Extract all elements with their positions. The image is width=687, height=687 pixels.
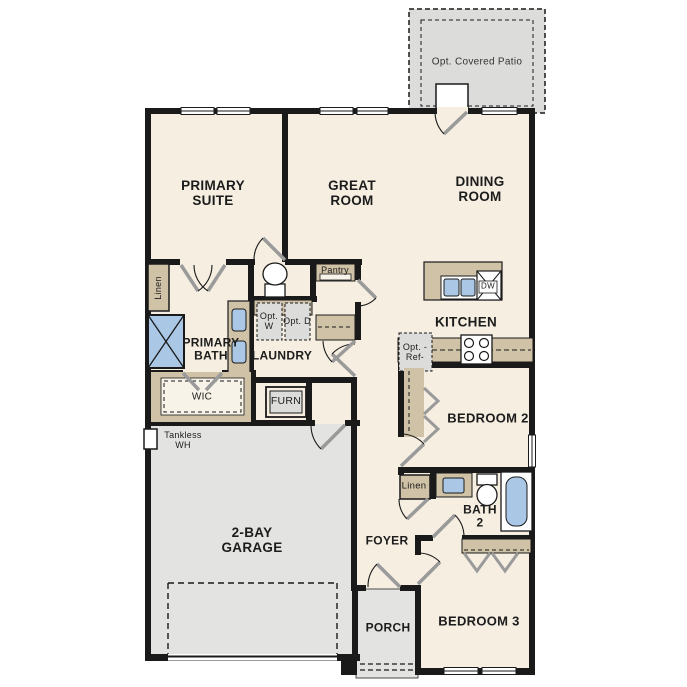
room-label-bath-2: BATH 2 (460, 504, 500, 531)
range-icon (461, 335, 492, 364)
floor-plan: Opt. Covered Patio PRIMARY SUITE GREAT R… (0, 0, 687, 687)
porch-post (341, 658, 357, 675)
label-opt-ref: Opt. -Ref- (399, 342, 431, 362)
bedroom2-closet (404, 368, 424, 437)
bathtub-icon (501, 472, 532, 531)
label-dishwasher: DW (481, 283, 495, 292)
garage-door-opening (168, 654, 337, 662)
room-label-patio: Opt. Covered Patio (432, 56, 522, 67)
room-label-great-room: GREAT ROOM (317, 178, 387, 208)
bedroom3-closet-shelf (462, 539, 531, 553)
label-opt-dryer: Opt. D (283, 316, 311, 326)
room-label-kitchen: KITCHEN (435, 314, 497, 329)
room-label-garage: 2-BAY GARAGE (212, 525, 292, 555)
floor-plan-drawing (0, 0, 687, 687)
dining-room-window (482, 108, 517, 115)
room-label-laundry: LAUNDRY (252, 349, 312, 362)
room-label-foyer: FOYER (366, 534, 409, 547)
room-label-dining-room: DINING ROOM (445, 174, 515, 204)
label-furnace: FURN (271, 396, 301, 408)
label-linen-bath2: Linen (402, 482, 427, 493)
room-label-primary-bath: PRIMARY BATH (175, 337, 247, 364)
label-linen-primary: Linen (153, 276, 163, 300)
island-sink-icon (441, 276, 477, 299)
room-label-bedroom-2: BEDROOM 2 (447, 412, 528, 427)
coat-closet-shelf (316, 315, 355, 340)
label-tankless-wh: Tankless WH (156, 430, 210, 450)
primary-toilet-icon (263, 263, 287, 297)
room-label-porch: PORCH (366, 621, 411, 634)
bath2-toilet-icon (477, 474, 497, 506)
label-opt-washer: Opt. W (255, 311, 283, 331)
room-label-bedroom-3: BEDROOM 3 (438, 615, 519, 630)
bath2-vanity-sink (436, 473, 472, 497)
bedroom2-window (529, 435, 536, 467)
room-label-wic: WIC (192, 391, 212, 402)
room-label-primary-suite: PRIMARY SUITE (163, 178, 263, 208)
label-pantry: Pantry (321, 265, 349, 275)
